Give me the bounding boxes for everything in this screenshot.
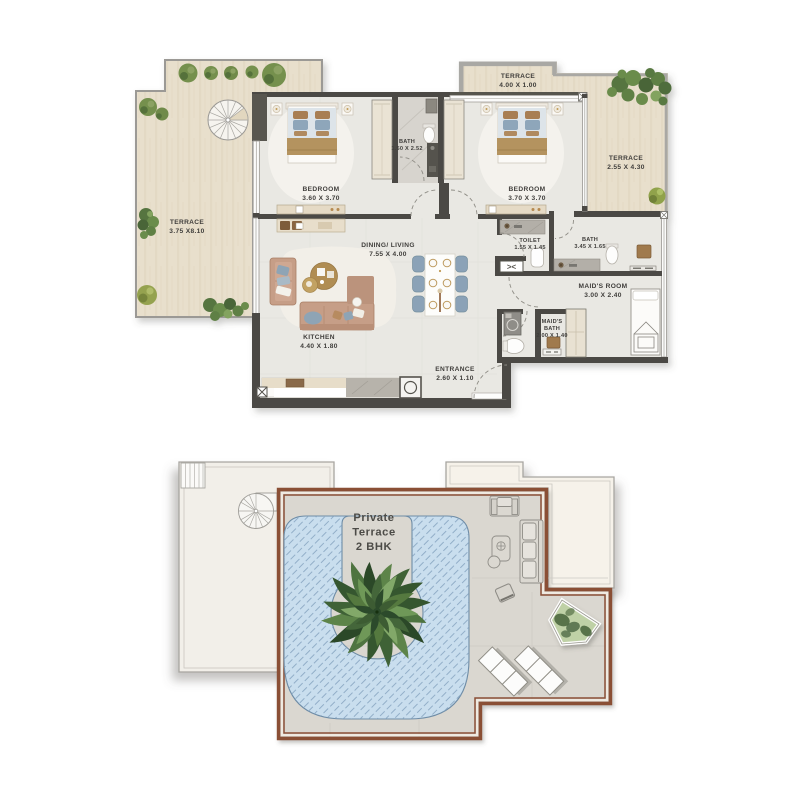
svg-text:3.45 X 1.65: 3.45 X 1.65 bbox=[574, 244, 605, 250]
svg-text:MAID'S: MAID'S bbox=[542, 319, 563, 325]
svg-text:TOILET: TOILET bbox=[519, 238, 541, 244]
svg-text:BEDROOM: BEDROOM bbox=[509, 186, 546, 193]
svg-text:3.70 X 3.70: 3.70 X 3.70 bbox=[508, 195, 546, 202]
svg-text:><: >< bbox=[507, 263, 517, 272]
svg-text:2.60 X 1.10: 2.60 X 1.10 bbox=[436, 375, 474, 382]
svg-text:ENTRANCE: ENTRANCE bbox=[435, 366, 475, 373]
svg-text:BATH: BATH bbox=[544, 326, 560, 332]
svg-text:3.60 X 3.70: 3.60 X 3.70 bbox=[302, 195, 340, 202]
svg-text:Private: Private bbox=[353, 512, 394, 524]
svg-text:4.40 X 1.80: 4.40 X 1.80 bbox=[300, 343, 338, 350]
svg-text:DINING/ LIVING: DINING/ LIVING bbox=[361, 242, 415, 249]
svg-text:TERRACE: TERRACE bbox=[170, 219, 205, 226]
svg-text:TERRACE: TERRACE bbox=[501, 73, 536, 80]
svg-text:MAID'S ROOM: MAID'S ROOM bbox=[578, 283, 627, 290]
svg-text:2 BHK: 2 BHK bbox=[356, 541, 392, 553]
svg-text:3.75 X8.10: 3.75 X8.10 bbox=[169, 228, 204, 235]
svg-text:BATH: BATH bbox=[399, 139, 415, 145]
svg-text:Terrace: Terrace bbox=[352, 527, 395, 539]
svg-text:4.00 X 1.00: 4.00 X 1.00 bbox=[499, 82, 537, 89]
svg-text:KITCHEN: KITCHEN bbox=[303, 334, 335, 341]
svg-text:2.00 X 1.40: 2.00 X 1.40 bbox=[536, 333, 567, 339]
svg-text:1.55 X 1.45: 1.55 X 1.45 bbox=[514, 245, 545, 251]
svg-text:TERRACE: TERRACE bbox=[609, 155, 644, 162]
svg-text:BEDROOM: BEDROOM bbox=[303, 186, 340, 193]
svg-text:7.55 X 4.00: 7.55 X 4.00 bbox=[369, 251, 407, 258]
svg-text:1.50 X 2.52: 1.50 X 2.52 bbox=[391, 146, 422, 152]
svg-text:2.55 X 4.30: 2.55 X 4.30 bbox=[607, 164, 645, 171]
svg-text:BATH: BATH bbox=[582, 237, 598, 243]
svg-text:3.00 X 2.40: 3.00 X 2.40 bbox=[584, 292, 622, 299]
